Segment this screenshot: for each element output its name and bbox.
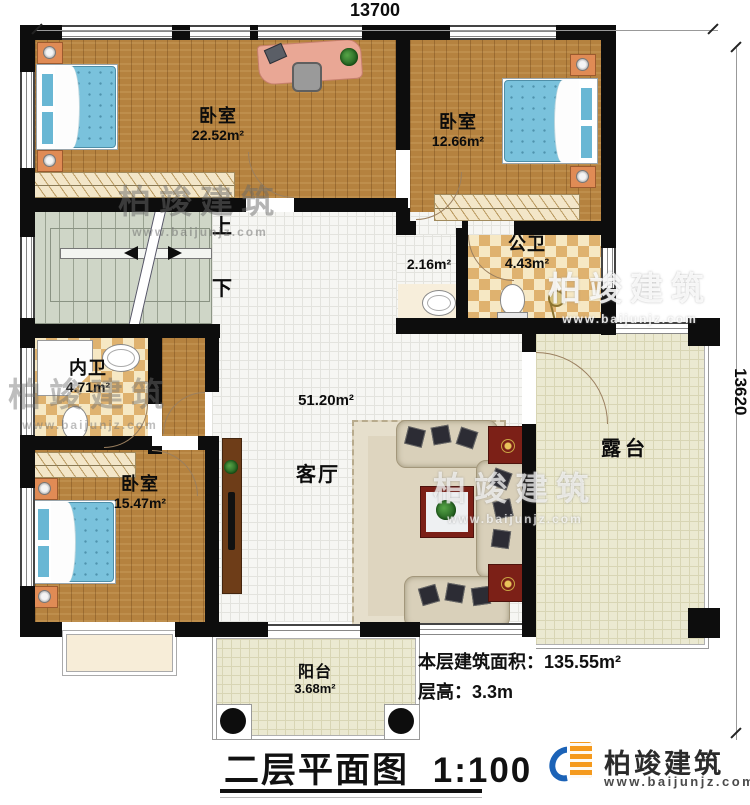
wall-segment [456, 228, 468, 324]
wall-segment [522, 334, 536, 352]
room-area: 12.66m² [398, 133, 518, 149]
dimension-line-top [36, 30, 718, 31]
room-name: 卧室 [80, 474, 200, 495]
brand-logo-icon [550, 740, 598, 788]
plant-icon [340, 48, 358, 66]
stairs-up-label: 上 [212, 216, 232, 239]
plant-icon [224, 460, 238, 474]
room-label-bedroom-top-left: 卧室 22.52m² [158, 106, 278, 143]
sofa-pillow [431, 425, 452, 446]
wall-segment [601, 25, 616, 335]
room-name: 卧室 [398, 112, 518, 133]
wall-segment [20, 324, 220, 338]
room-name: 阳台 [270, 664, 360, 682]
window [601, 248, 616, 288]
room-label-living: 客厅 [266, 464, 370, 487]
wall-segment [522, 424, 536, 637]
wall-segment [205, 338, 219, 392]
room-area: 4.71m² [38, 379, 138, 395]
wall-segment [20, 436, 152, 450]
window [20, 348, 35, 435]
living-area-label: 51.20m² [280, 392, 372, 409]
room-label-bedroom-bottom-left: 卧室 15.47m² [80, 474, 200, 511]
balcony-column [220, 708, 246, 734]
sofa-pillow [491, 529, 511, 549]
window [20, 488, 35, 586]
bed [36, 64, 118, 150]
logo-building-icon [567, 742, 592, 778]
floor-plan: 卧室 22.52m² 卧室 12.66m² 卧室 15.47m² 公卫 4.43… [0, 0, 750, 805]
window [62, 25, 172, 40]
window [420, 623, 522, 635]
nightstand [37, 42, 63, 64]
room-area: 4.43m² [472, 255, 582, 271]
wall-segment [396, 221, 416, 235]
wardrobe [434, 194, 580, 221]
info-height-label: 层高： [418, 682, 472, 702]
room-label-private-bathroom: 内卫 4.71m² [38, 358, 138, 395]
title-text: 二层平面图 [224, 751, 409, 790]
room-area: 15.47m² [80, 495, 200, 511]
window [20, 237, 35, 318]
room-label-balcony: 阳台 3.68m² [270, 664, 360, 697]
nightstand [570, 54, 596, 76]
plant-icon [436, 500, 456, 520]
stairs-down-label: 下 [212, 278, 232, 301]
nightstand [32, 586, 58, 608]
sink-icon [422, 290, 456, 316]
room-name: 公卫 [472, 234, 582, 255]
nightstand [32, 478, 58, 500]
hallway-area-label: 2.16m² [396, 256, 462, 272]
wall-segment [294, 198, 408, 212]
info-height-value: 3.3m [472, 682, 513, 702]
tv-icon [228, 492, 235, 550]
dimension-right-label: 13620 [730, 352, 750, 432]
wall-segment [20, 622, 62, 637]
wardrobe [33, 172, 235, 198]
end-table [488, 564, 526, 602]
balcony-column [388, 708, 414, 734]
room-area: 3.68m² [270, 682, 360, 697]
sofa-pillow [492, 498, 513, 519]
wall-segment [205, 436, 219, 636]
room-area: 22.52m² [158, 127, 278, 143]
title-underline [220, 789, 482, 793]
wall-segment [148, 338, 162, 404]
wall-segment [20, 198, 246, 212]
nightstand [37, 150, 63, 172]
info-area-label: 本层建筑面积： [418, 652, 544, 672]
stair-arrow-left [124, 246, 138, 260]
wall-segment [360, 622, 420, 637]
dimension-tick [707, 23, 718, 34]
room-name: 卧室 [158, 106, 278, 127]
room-label-bedroom-top-right: 卧室 12.66m² [398, 112, 518, 149]
end-table [488, 426, 526, 464]
window [190, 25, 250, 40]
wall-segment [514, 221, 616, 235]
window [20, 72, 35, 168]
window [258, 25, 362, 40]
toilet-icon [62, 406, 88, 440]
wall-segment [175, 622, 268, 637]
window [450, 25, 556, 40]
room-label-public-bathroom: 公卫 4.43m² [472, 234, 582, 271]
toilet-icon [500, 284, 525, 315]
title-underline-thin [220, 797, 482, 798]
nightstand [570, 166, 596, 188]
balcony-sliding-door[interactable] [268, 624, 360, 635]
drawing-title: 二层平面图 1:100 [224, 742, 532, 793]
terrace-column [688, 608, 720, 638]
desk-chair [292, 62, 322, 92]
room-label-terrace: 露台 [582, 438, 668, 461]
terrace-railing [616, 322, 688, 334]
wall-segment [396, 318, 616, 334]
stair-inner-outline [50, 228, 210, 302]
info-area-value: 135.55m² [544, 652, 621, 672]
bed [32, 500, 116, 584]
dimension-top-label: 13700 [330, 0, 420, 21]
title-scale: 1:100 [433, 751, 533, 790]
info-area-line: 本层建筑面积：135.55m² [418, 648, 621, 674]
room-name: 内卫 [38, 358, 138, 379]
brand-url: www.baijunjz.com [604, 774, 750, 789]
info-height-line: 层高：3.3m [418, 678, 513, 704]
stair-arrow-right [168, 246, 182, 260]
terrace-column [688, 318, 720, 346]
bay-window [62, 630, 177, 676]
sofa-pillow [445, 583, 466, 604]
